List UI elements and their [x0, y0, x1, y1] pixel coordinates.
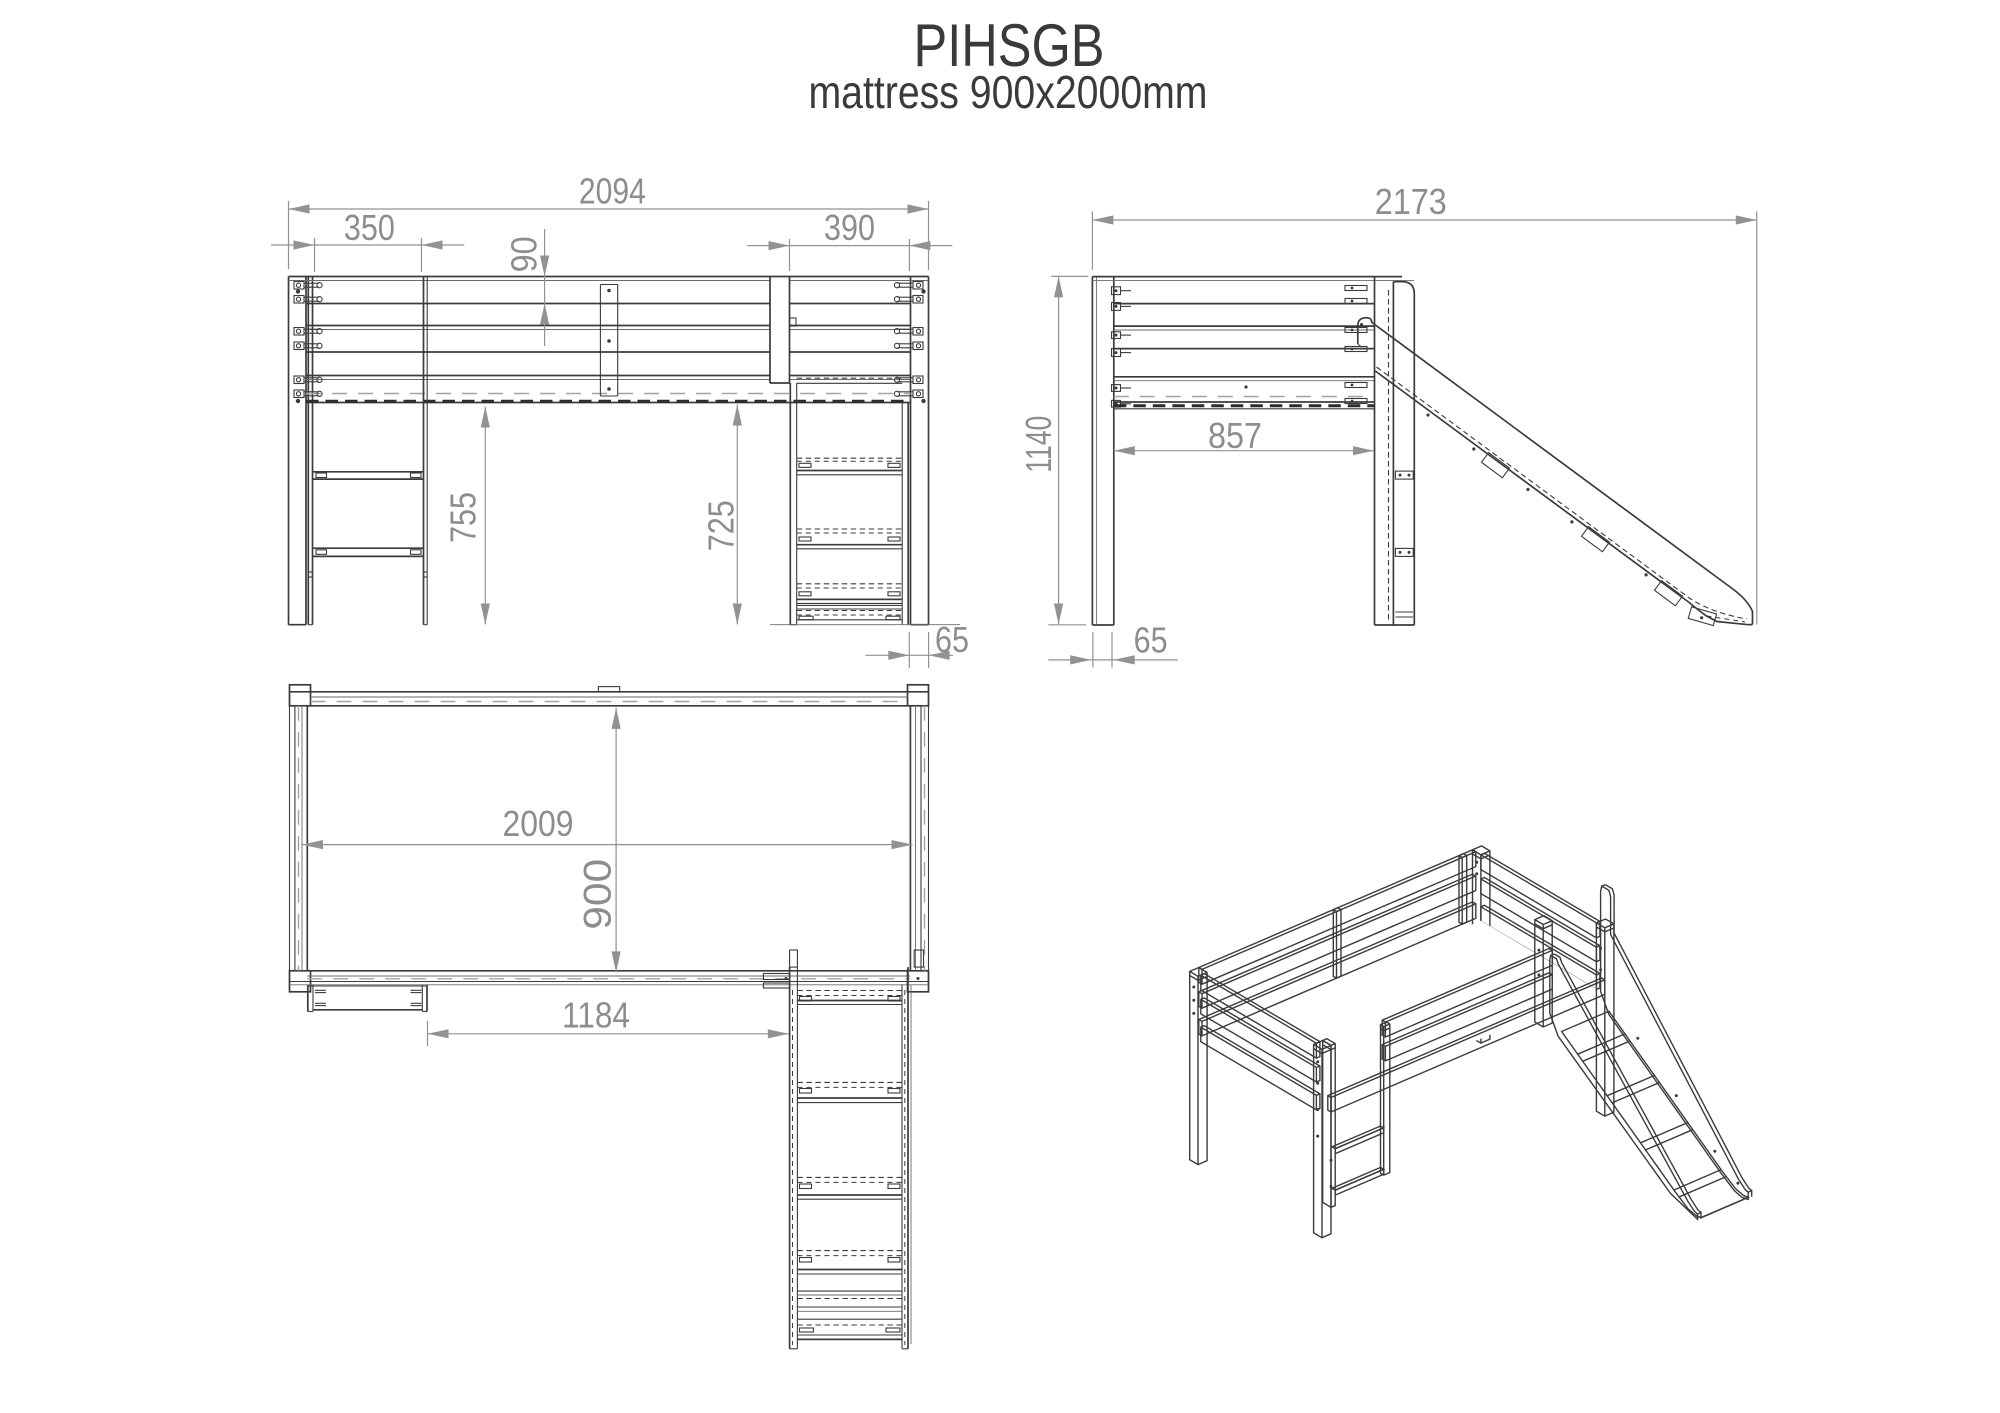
svg-text:65: 65: [1134, 620, 1168, 661]
svg-text:2009: 2009: [503, 803, 574, 844]
svg-text:350: 350: [344, 207, 395, 248]
svg-text:65: 65: [935, 619, 969, 660]
svg-text:725: 725: [701, 500, 742, 551]
svg-text:1184: 1184: [562, 995, 630, 1036]
svg-text:390: 390: [824, 207, 875, 248]
svg-text:2094: 2094: [579, 171, 646, 212]
svg-text:2173: 2173: [1375, 181, 1447, 222]
svg-text:1140: 1140: [1018, 416, 1059, 473]
svg-text:mattress 900x2000mm: mattress 900x2000mm: [809, 66, 1208, 118]
svg-text:90: 90: [504, 236, 545, 272]
svg-text:900: 900: [577, 859, 620, 930]
svg-text:755: 755: [442, 492, 483, 543]
svg-text:857: 857: [1208, 415, 1262, 456]
